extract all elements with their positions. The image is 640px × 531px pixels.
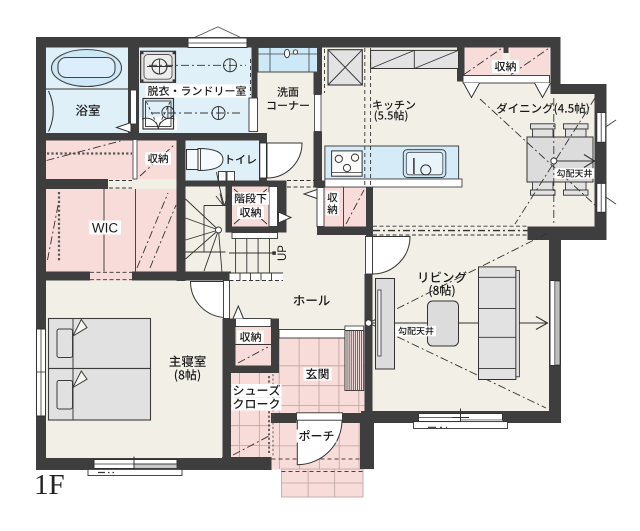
svg-text:UP: UP bbox=[277, 245, 289, 261]
svg-text:WIC: WIC bbox=[92, 221, 118, 236]
svg-text:1F: 1F bbox=[34, 469, 65, 501]
